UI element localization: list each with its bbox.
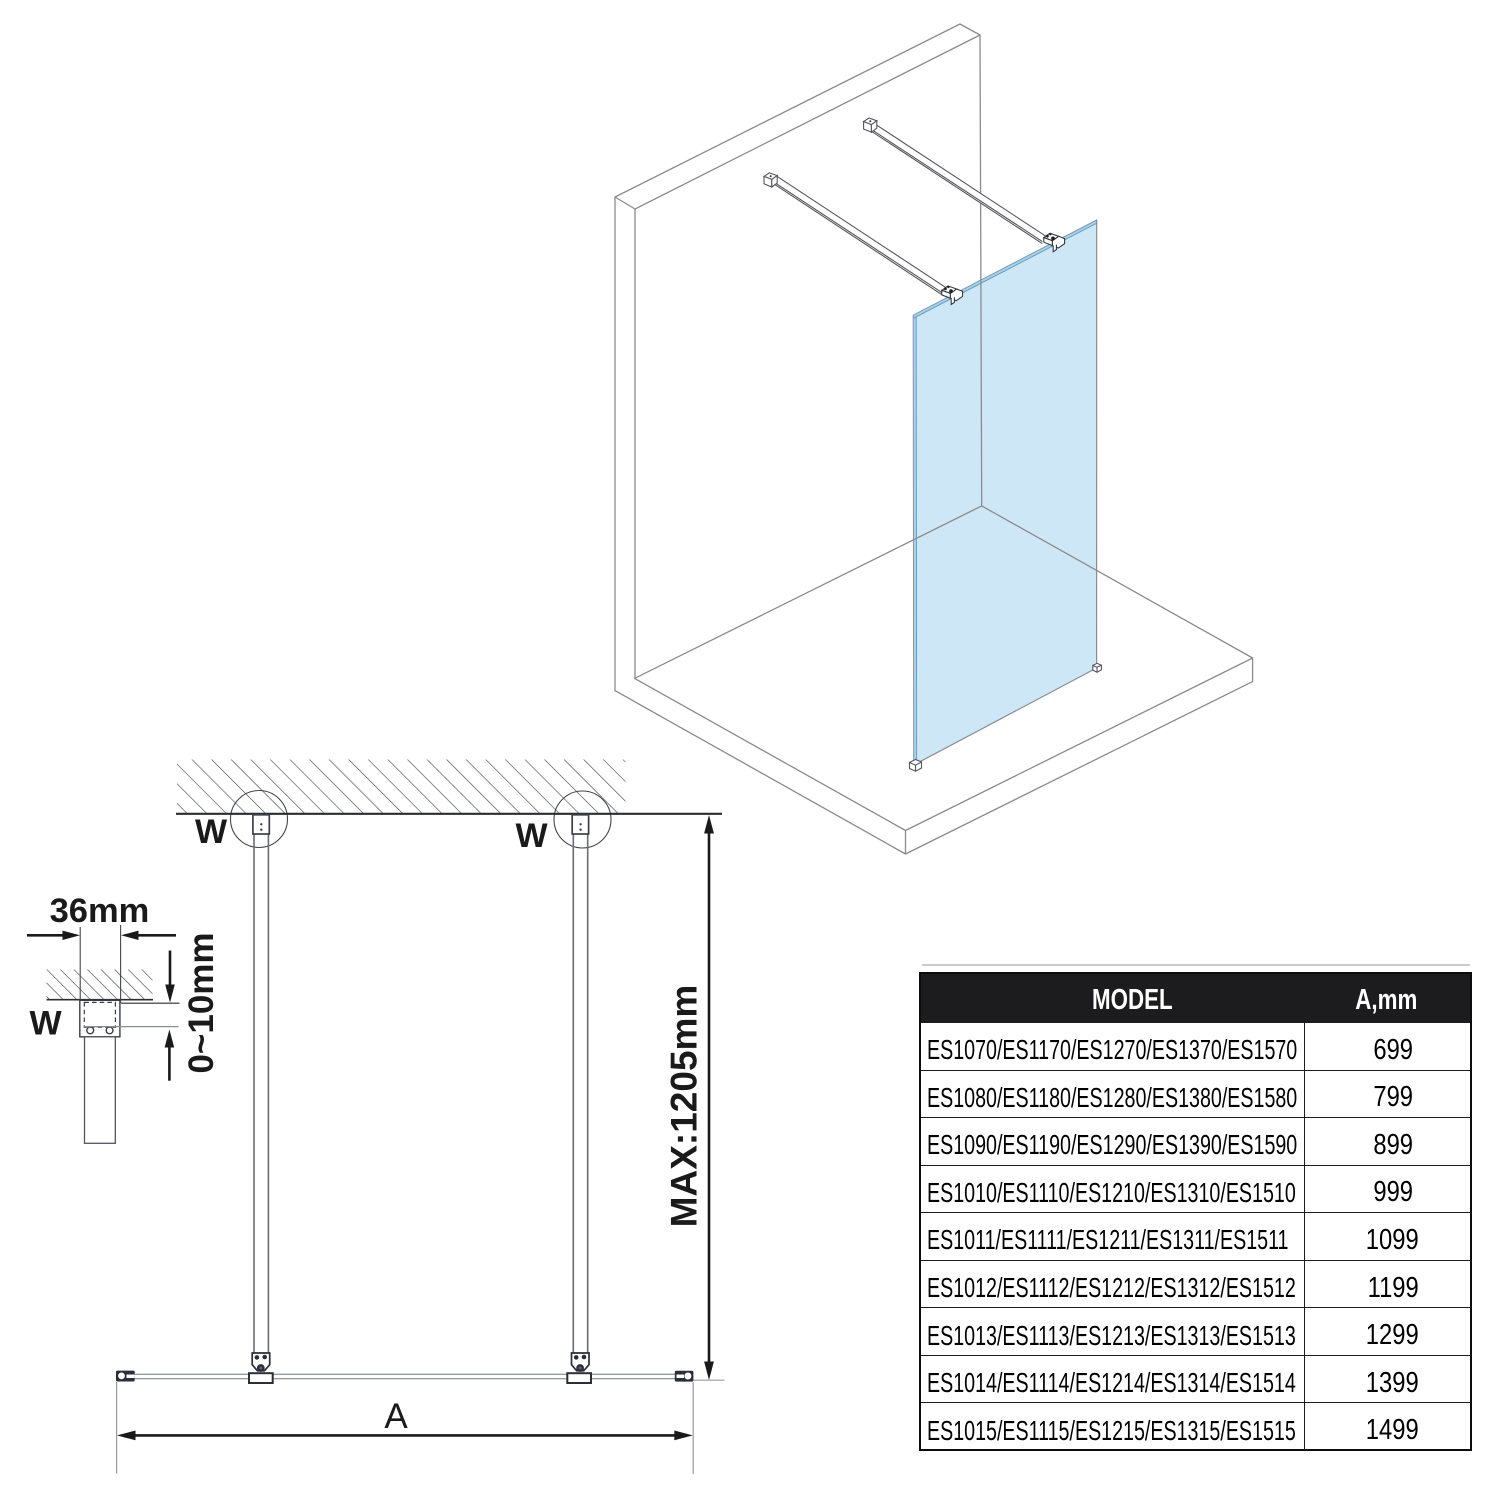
svg-text:W: W — [515, 817, 548, 855]
svg-text:W: W — [195, 813, 228, 851]
svg-text:36mm: 36mm — [50, 892, 150, 930]
svg-text:A: A — [384, 1397, 408, 1436]
svg-text:MAX:1205mm: MAX:1205mm — [664, 985, 705, 1228]
svg-text:W: W — [29, 1005, 62, 1043]
svg-text:0~10mm: 0~10mm — [182, 932, 221, 1073]
